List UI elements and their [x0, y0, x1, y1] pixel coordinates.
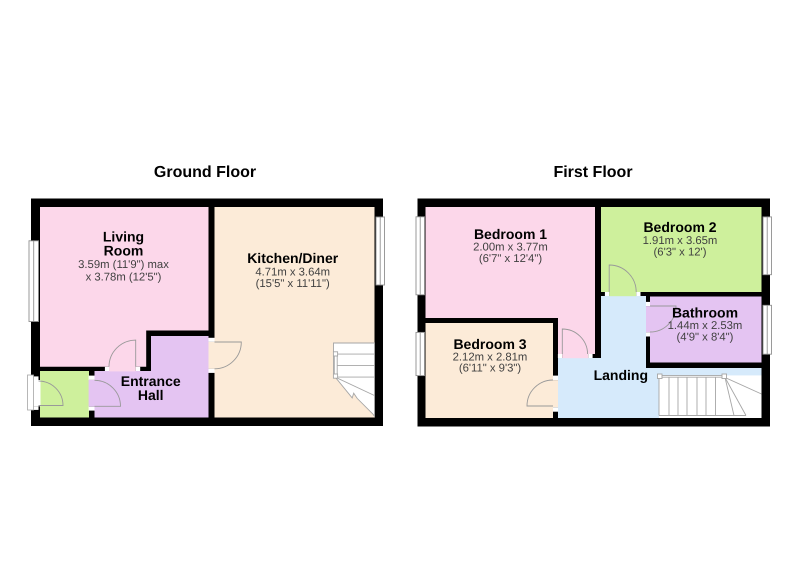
svg-text:Bedroom 3: Bedroom 3: [453, 336, 526, 352]
svg-text:Ground Floor: Ground Floor: [154, 164, 256, 181]
svg-text:Bathroom: Bathroom: [672, 305, 738, 321]
svg-text:(4'9" x 8'4"): (4'9" x 8'4"): [677, 331, 734, 343]
svg-text:(15'5" x 11'11"): (15'5" x 11'11"): [256, 278, 330, 290]
svg-text:Hall: Hall: [138, 387, 164, 403]
svg-text:Kitchen/Diner: Kitchen/Diner: [247, 250, 339, 266]
svg-text:2.12m x 2.81m: 2.12m x 2.81m: [453, 351, 528, 363]
svg-text:1.91m x 3.65m: 1.91m x 3.65m: [643, 235, 718, 247]
svg-text:(6'3" x 12'): (6'3" x 12'): [654, 246, 707, 258]
svg-text:x 3.78m (12'5"): x 3.78m (12'5"): [86, 271, 162, 283]
svg-text:Bedroom 2: Bedroom 2: [643, 219, 716, 235]
svg-text:3.59m (11'9") max: 3.59m (11'9") max: [78, 259, 169, 271]
svg-text:Bedroom 1: Bedroom 1: [474, 226, 547, 242]
svg-text:1.44m x 2.53m: 1.44m x 2.53m: [668, 320, 743, 332]
svg-text:First Floor: First Floor: [553, 164, 632, 181]
svg-text:2.00m x 3.77m: 2.00m x 3.77m: [473, 241, 548, 253]
svg-text:(6'11" x 9'3"): (6'11" x 9'3"): [459, 363, 522, 375]
svg-text:4.71m x 3.64m: 4.71m x 3.64m: [255, 266, 330, 278]
svg-text:(6'7" x 12'4"): (6'7" x 12'4"): [479, 253, 542, 265]
svg-text:Landing: Landing: [594, 367, 648, 383]
svg-text:Room: Room: [104, 243, 144, 259]
